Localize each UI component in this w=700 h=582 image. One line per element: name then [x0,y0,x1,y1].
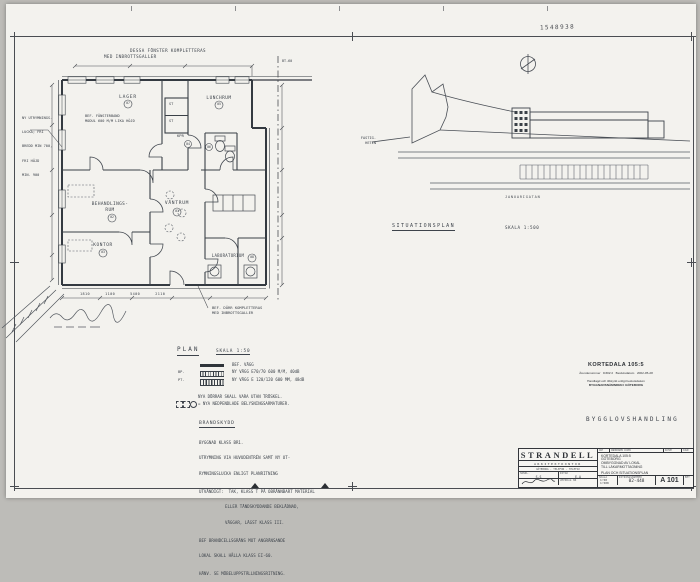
scanned-drawing-sheet: { "meta": { "doc_number": "1548938" }, "… [0,0,700,505]
document-number: 1548938 [540,25,575,33]
fold-mark [321,483,329,488]
luminaire-symbol-square [176,401,183,408]
brandskydd-line: BYGGNAD KLASS BR1. [199,440,315,445]
drawing-number-value: 02-448 [618,479,655,485]
brandskydd-line: ELLER TÄNDSKYDDANDE BEKLÄDNAD, [225,504,315,509]
plan-title: PLAN [177,347,199,356]
project-desc2: TILL LÄKARMOTTAGNING [601,466,693,470]
stamp-case-row: Ärendenummer D302:2 Beslutsdatum 2002-05… [540,371,692,375]
film-tick [547,6,548,11]
brandskydd-line: BEF BRANDCELLSGRÄNS MOT ANGRÄNSANDE [199,538,315,543]
door-grille-note-line2: MED INBROTTSGALLER [212,311,253,315]
film-tick [235,6,236,11]
assignment-cell: UPPDRAG NR [559,479,597,485]
sheet-number-cell: A 101 [656,476,684,485]
crop-mark [10,258,19,267]
site-buildings [512,108,664,138]
room-num-behandling: 02 [108,216,116,220]
permit-watermark: BYGGLOVSHANDLING [586,417,679,424]
room-num-vantrum: 01 [173,210,181,214]
legend-text-0: BEF. VÄGG [232,363,254,368]
signature-scribble [519,479,557,486]
legend-symbol-new-wall-2 [200,379,224,386]
rev-header-ant: ANT [598,449,610,452]
legend-symbol-new-wall-1 [200,371,224,377]
room-num-lager: 07 [124,102,132,106]
brandskydd-line: HÄNV. SE MÖBELUPPSTÄLLNINGSRITNING. [199,571,315,576]
crop-mark [10,32,19,41]
drawing-number-cell: RITNINGSNUMMER 02-448 [618,476,656,485]
crop-mark [10,482,19,491]
room-num-wc: 06 [205,146,213,150]
site-boundary [372,75,690,143]
siteplan-title: SITUATIONSPLAN [392,224,455,231]
crop-mark [348,482,357,491]
brandskydd-line: VÄGGAR, LÄGST KLASS III. [225,520,315,525]
assignment-label: UPPDRAG NR [559,479,597,482]
rev-header-date: DATUM [664,449,682,452]
scale-cell: SKALA 1:50 1:500 [598,476,618,485]
permit-stamp: KORTEDALA 105:5 Ärendenummer D302:2 Besl… [540,362,692,387]
fire-protection-heading: BRANDSKYDD [199,421,235,428]
street-label: JANUARIGATAN [505,195,541,199]
room-num-kontor: 03 [99,251,107,255]
firm-name: STRANDELL [521,450,595,460]
signature-cell [519,479,559,485]
doors-note: NYA DÖRRAR SKALL VARA UTAN TRÖSKEL. [198,395,282,400]
title-block: STRANDELL ARKITEKTKONTOR GÖTEBORG · TELE… [518,448,694,488]
rev-header-change: ÄNDRINGEN AVSER [610,449,664,452]
site-plan-linework [380,55,695,240]
revision-letter-cell: BET [684,476,693,485]
brandskydd-line: RYMNINGSLUCKA ENLIGT PLANRITNING [199,471,315,476]
room-number-circles [20,40,360,350]
film-tick [339,6,340,11]
title-block-project-column: ANT ÄNDRINGEN AVSER DATUM SIGN KORTEDALA… [598,449,693,487]
legend-symbol-existing-wall [200,364,224,367]
scale-value-2: 1:500 [598,482,617,485]
title-block-firm-column: STRANDELL ARKITEKTKONTOR GÖTEBORG · TELE… [519,449,598,487]
brandskydd-line: UTRYMNING VIA HUVUDENTRÉN SAMT NY UT- [199,455,315,460]
crop-mark [687,32,696,41]
crop-mark [687,258,696,267]
north-symbol [521,54,536,74]
luminaire-note: = NYA NEDPENDLADE BELYSNINGSARMATURER. [198,402,290,407]
plan-scale: SKALA 1:50 [216,349,250,355]
room-num-kpr: 04 [184,143,192,147]
stamp-title: KORTEDALA 105:5 [540,362,692,368]
luminaire-symbol-square [183,401,190,408]
site-area-label-2: HETEN [346,141,376,145]
site-area-label-1: FASTIG- [346,136,376,140]
stamp-note-line2: BYGGNADSNÄMNDEN I GÖTEBORG [540,383,692,387]
brandskydd-line: UTVÄNDIGT: TAK, KLASS T PÅ OBRÄNNBART MA… [199,489,315,494]
room-num-lunchrum: 05 [215,103,223,107]
fire-protection-text: BYGGNAD KLASS BR1. UTRYMNING VIA HUVUDEN… [199,430,315,582]
brandskydd-line: LOKAL SKALL HÅLLA KLASS EI-60. [199,553,315,558]
revision-letter-label: BET [684,476,693,479]
siteplan-scale: SKALA 1:500 [505,226,539,231]
film-tick [131,6,132,11]
sheet-number-value: A 101 [660,477,678,484]
film-tick [443,6,444,11]
rev-header-sign: SIGN [682,449,693,452]
legend-tag-1: BP. [178,370,185,374]
legend-text-2: NY VÄGG E 120/120 600 MM, 48dB [232,378,304,383]
plan-dimension-row: 1810 1100 5400 2110 [80,292,165,296]
legend-text-1: NY VÄGG E70/70 600 M/M, 40dB [232,370,299,375]
building-window-grid [515,111,528,132]
luminaire-symbol-circle [190,401,197,408]
legend-tag-2: PT. [178,378,185,382]
parking-comb [520,165,648,179]
room-num-laboratorium: 08 [248,256,256,260]
